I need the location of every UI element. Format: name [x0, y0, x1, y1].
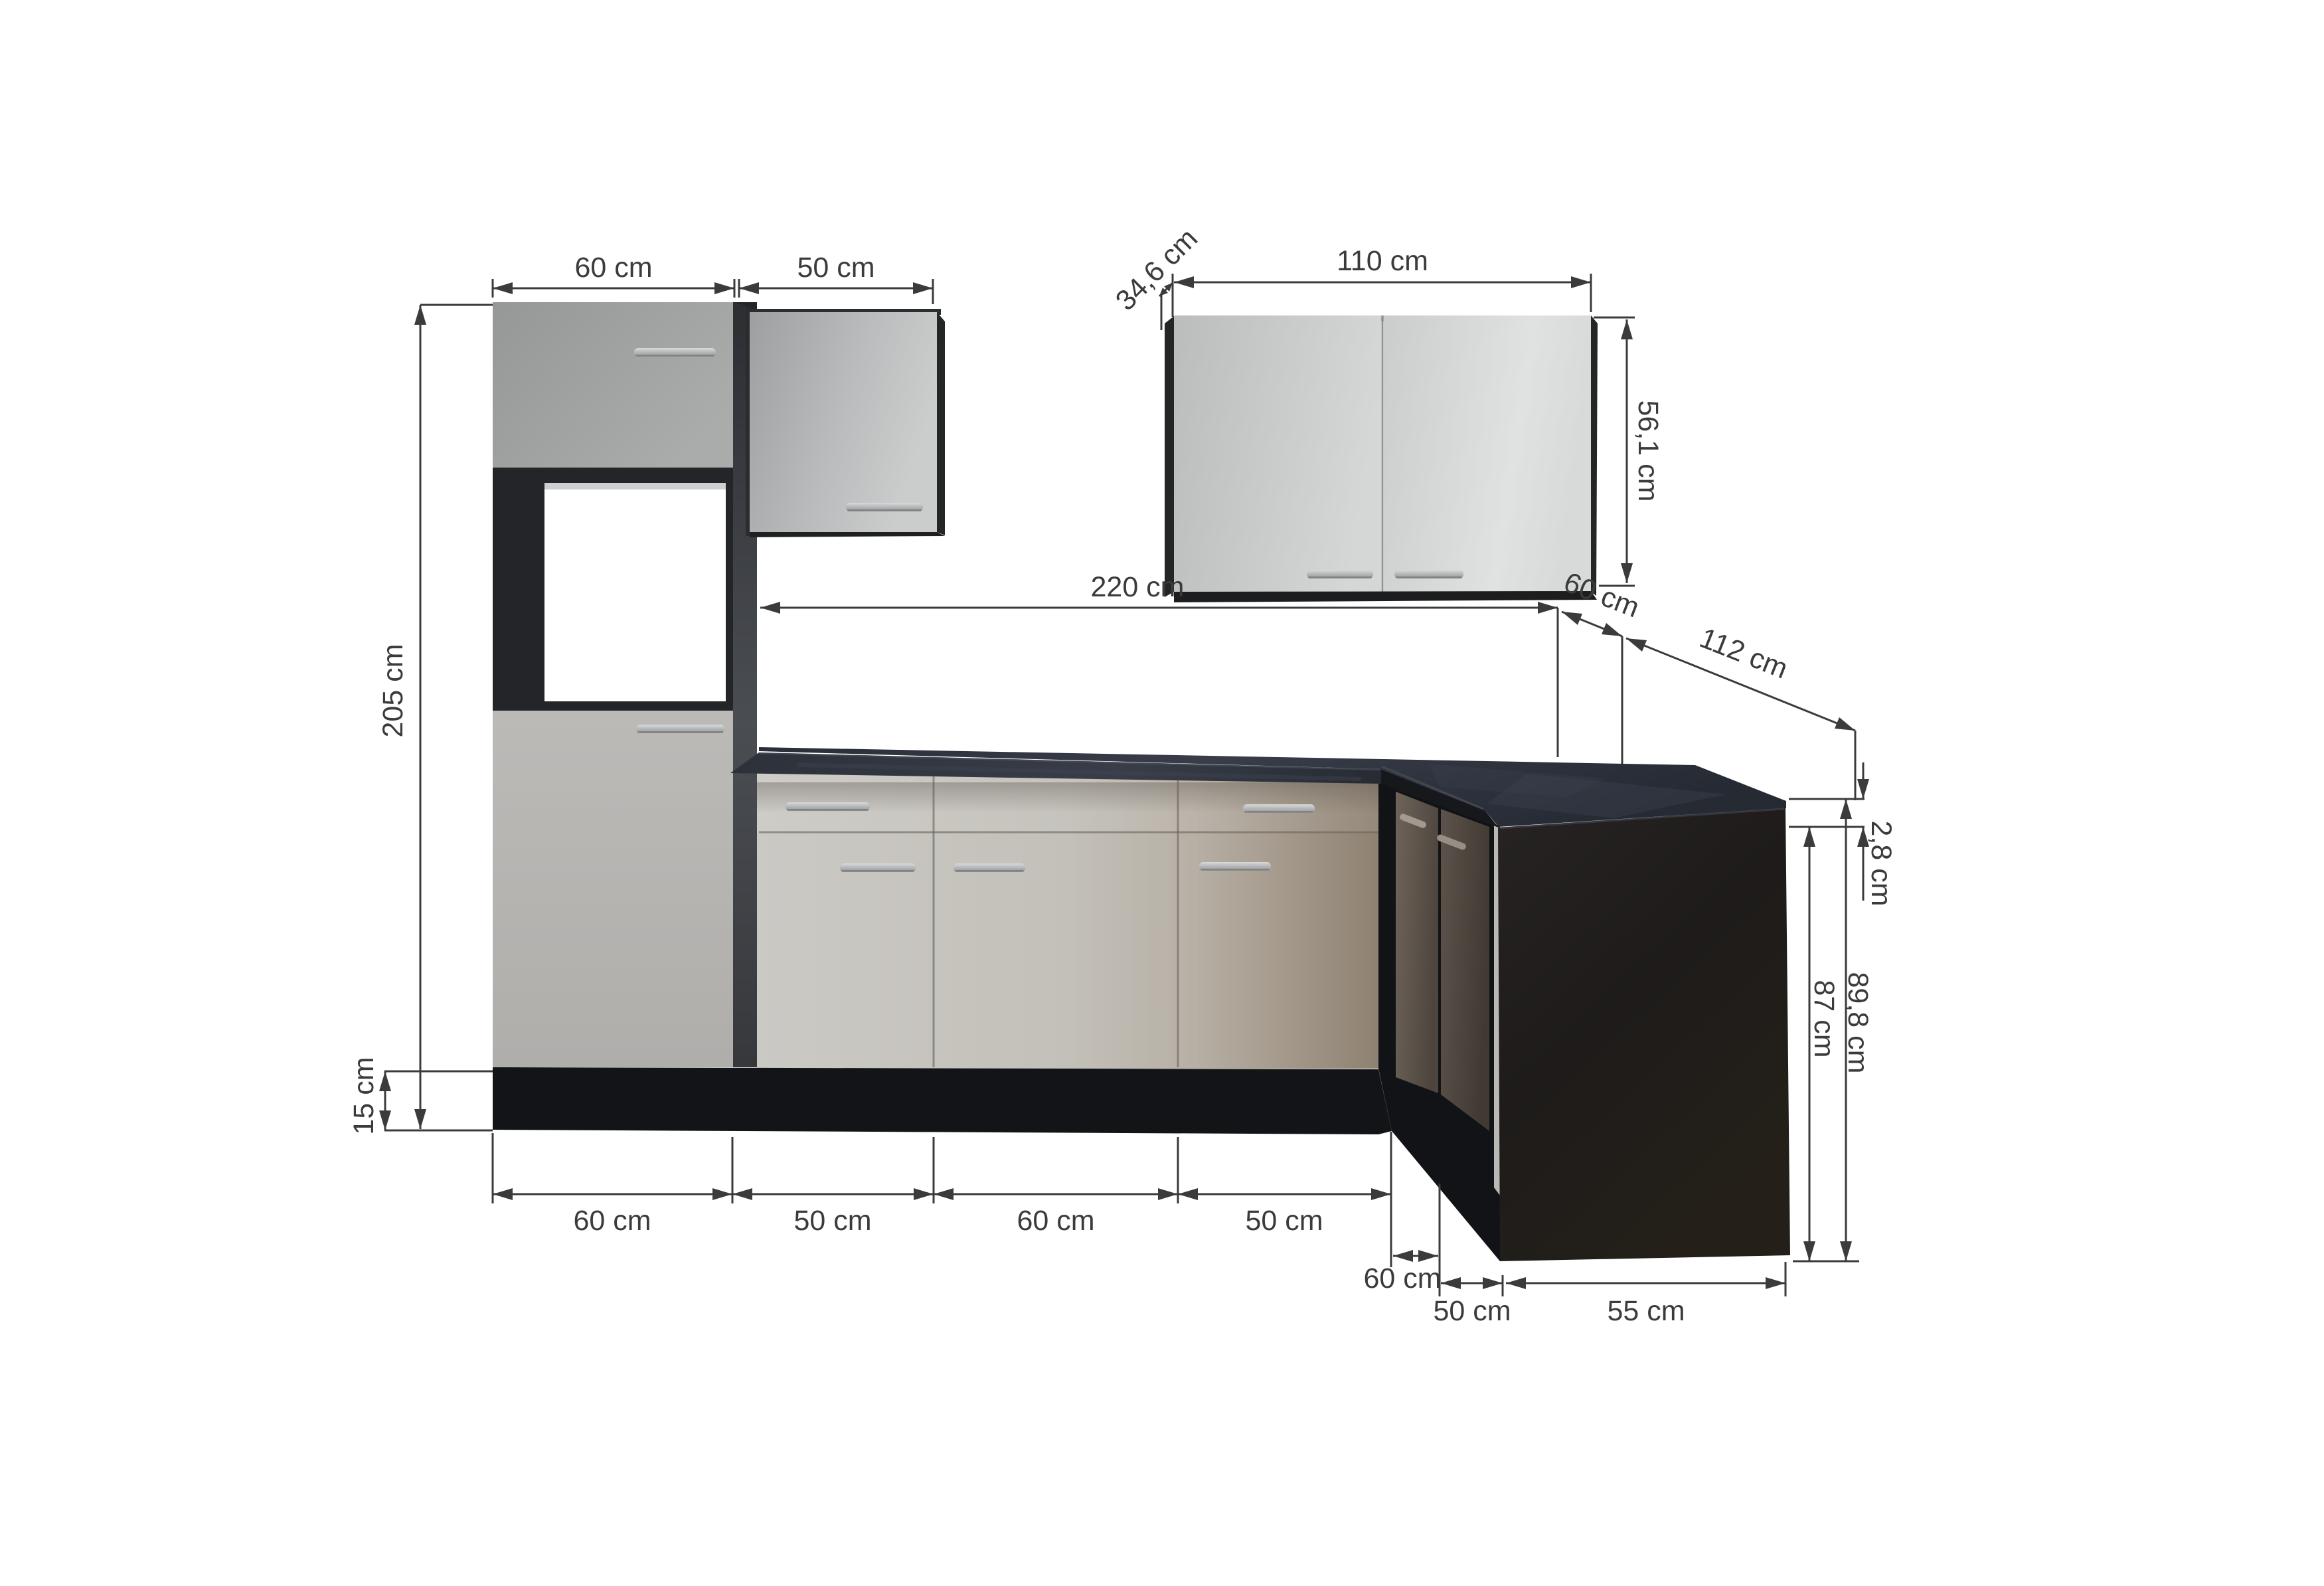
svg-text:205 cm: 205 cm	[377, 644, 409, 737]
svg-text:220 cm: 220 cm	[1090, 571, 1184, 603]
svg-text:15 cm: 15 cm	[348, 1057, 380, 1134]
svg-text:110 cm: 110 cm	[1337, 245, 1428, 277]
svg-text:89,8 cm: 89,8 cm	[1842, 972, 1874, 1074]
svg-text:60 cm: 60 cm	[1017, 1205, 1094, 1237]
svg-text:55 cm: 55 cm	[1607, 1295, 1685, 1327]
svg-text:50 cm: 50 cm	[797, 252, 874, 284]
svg-text:87 cm: 87 cm	[1808, 980, 1840, 1057]
svg-text:60 cm: 60 cm	[1363, 1263, 1441, 1294]
svg-text:2,8 cm: 2,8 cm	[1865, 820, 1897, 906]
svg-text:50 cm: 50 cm	[1245, 1205, 1323, 1237]
svg-text:50 cm: 50 cm	[793, 1205, 871, 1237]
svg-text:60 cm: 60 cm	[573, 1205, 651, 1237]
svg-text:50 cm: 50 cm	[1433, 1295, 1511, 1327]
svg-text:56,1 cm: 56,1 cm	[1632, 400, 1664, 502]
svg-text:60 cm: 60 cm	[574, 252, 652, 284]
